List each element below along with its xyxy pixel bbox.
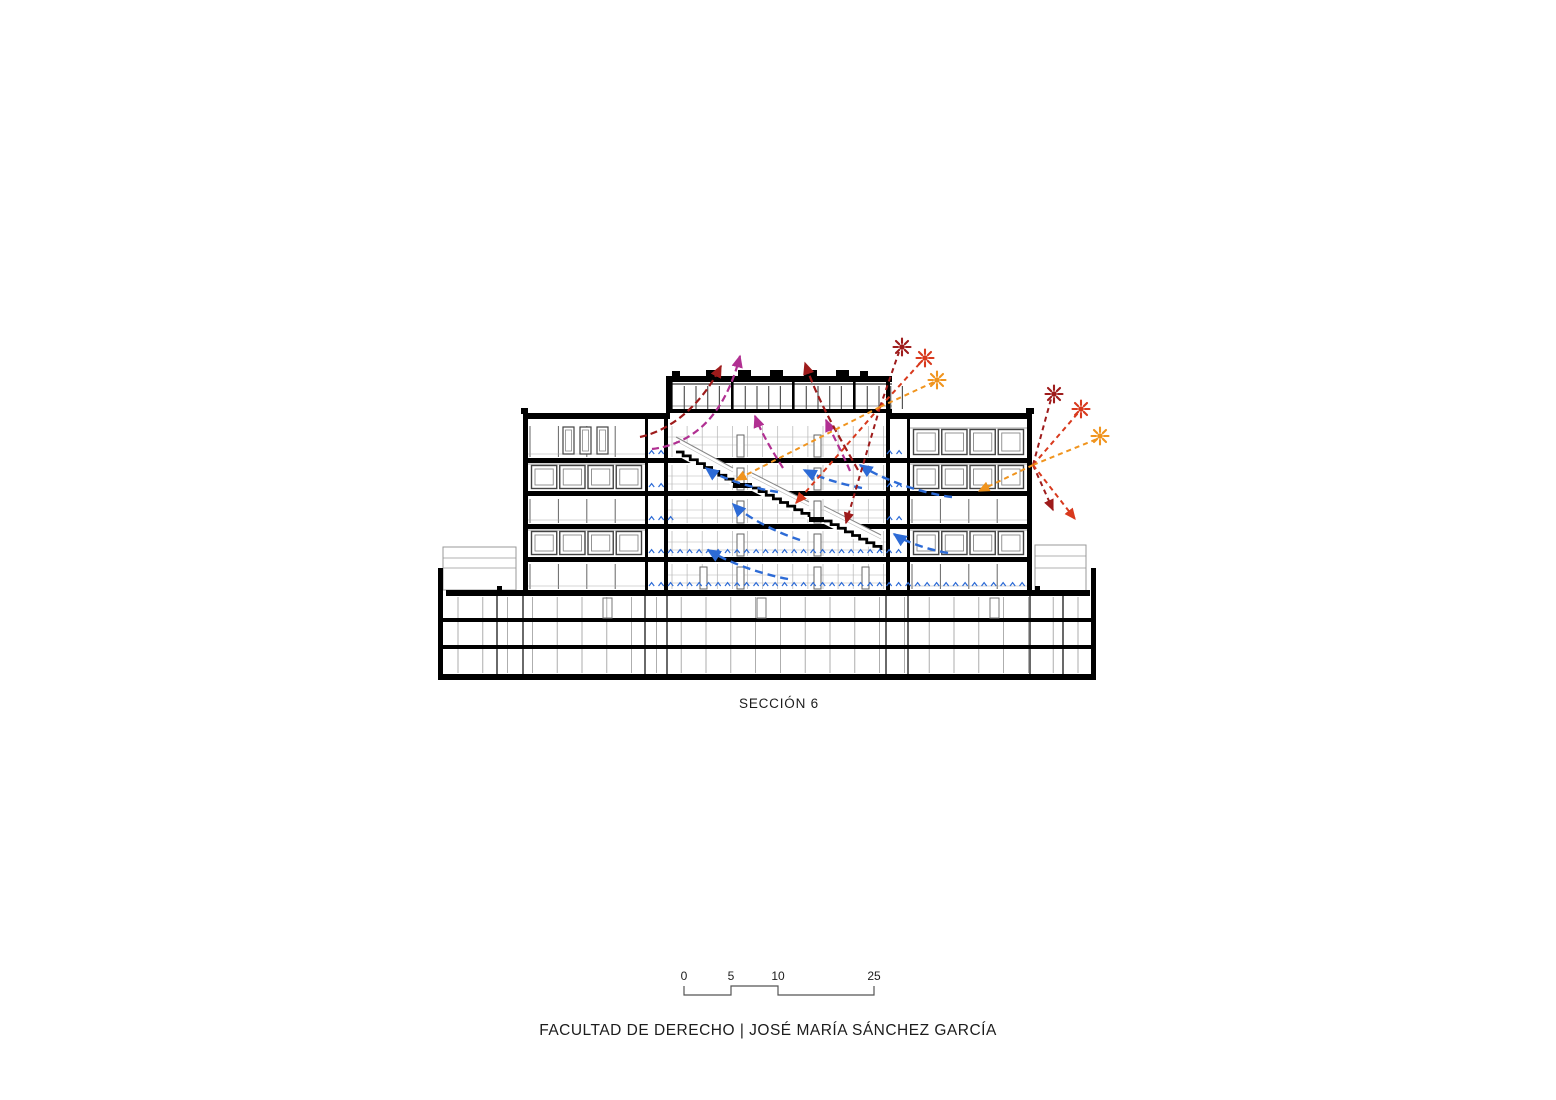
air-supply-chevron bbox=[896, 550, 901, 553]
podium-column-grid bbox=[458, 596, 1078, 674]
penthouse-left-wall bbox=[666, 376, 670, 419]
air-supply-chevron bbox=[991, 583, 996, 586]
solar-gain-arrow-2b bbox=[1033, 465, 1075, 519]
air-supply-chevron bbox=[649, 550, 654, 553]
solar-gain-arrow-1a bbox=[846, 407, 880, 523]
atrium-door bbox=[737, 501, 744, 523]
air-supply-chevron bbox=[649, 583, 654, 586]
podium-slab bbox=[443, 618, 1091, 622]
cool-air-arrow-6 bbox=[708, 550, 788, 579]
podium-slab bbox=[443, 645, 1091, 649]
left-annex bbox=[443, 547, 516, 590]
sun-ray-2b bbox=[1033, 413, 1078, 465]
air-supply-chevron bbox=[934, 583, 939, 586]
sun-icon bbox=[917, 350, 934, 367]
air-supply-chevron bbox=[659, 484, 664, 487]
air-supply-chevron bbox=[649, 451, 654, 454]
penthouse-base-slab bbox=[666, 409, 892, 413]
section-title: SECCIÓN 6 bbox=[739, 696, 819, 711]
drawing-sheet: 0 5 10 25 SECCIÓN 6 FACULTAD DE DERECHO … bbox=[0, 0, 1556, 1100]
sun-ray-2c bbox=[1033, 439, 1097, 465]
air-supply-chevron bbox=[649, 484, 654, 487]
scale-label-10: 10 bbox=[771, 969, 785, 983]
section-drawing: 0 5 10 25 SECCIÓN 6 FACULTAD DE DERECHO … bbox=[0, 0, 1556, 1100]
air-supply-chevron bbox=[1010, 583, 1015, 586]
atrium-door bbox=[737, 567, 744, 589]
sun-icon bbox=[894, 339, 911, 356]
penthouse-glazing bbox=[666, 382, 902, 412]
atrium-door bbox=[737, 435, 744, 457]
air-supply-chevron bbox=[982, 583, 987, 586]
air-supply-chevron bbox=[953, 583, 958, 586]
air-supply-chevron bbox=[659, 583, 664, 586]
podium-right-wall bbox=[1091, 568, 1096, 674]
podium-door bbox=[603, 598, 612, 618]
sun-icon bbox=[1092, 428, 1109, 445]
podium-door bbox=[990, 598, 999, 618]
penthouse-roof-slab bbox=[666, 376, 892, 382]
air-supply-chevron bbox=[963, 583, 968, 586]
right-facade-wall bbox=[1027, 413, 1032, 590]
sun-icon bbox=[1046, 386, 1063, 403]
air-supply-chevron bbox=[897, 451, 902, 454]
sun-icon bbox=[929, 372, 946, 389]
air-supply-chevron bbox=[972, 583, 977, 586]
air-supply-chevron bbox=[659, 451, 664, 454]
sun-icon bbox=[1073, 401, 1090, 418]
scale-label-25: 25 bbox=[867, 969, 881, 983]
left-facade-wall bbox=[523, 413, 528, 590]
podium-left-wall bbox=[438, 568, 443, 674]
podium-door bbox=[757, 598, 766, 618]
air-supply-chevron bbox=[896, 583, 901, 586]
podium-top-slab bbox=[446, 590, 1090, 596]
scale-bar-line bbox=[684, 986, 874, 995]
slab-step bbox=[497, 586, 502, 591]
air-supply-chevron bbox=[659, 517, 664, 520]
air-supply-chevron bbox=[649, 517, 654, 520]
air-supply-chevron bbox=[915, 583, 920, 586]
atrium-door bbox=[737, 534, 744, 556]
scale-bar: 0 5 10 25 bbox=[681, 969, 881, 995]
atrium-door bbox=[814, 468, 821, 490]
rooflight-upstands bbox=[672, 370, 868, 376]
air-supply-chevron bbox=[897, 517, 902, 520]
project-caption: FACULTAD DE DERECHO | JOSÉ MARÍA SÁNCHEZ… bbox=[539, 1022, 997, 1039]
right-annex bbox=[1035, 545, 1086, 592]
scale-label-0: 0 bbox=[681, 969, 688, 983]
penthouse bbox=[666, 370, 902, 419]
air-supply-chevron bbox=[1001, 583, 1006, 586]
air-supply-chevron bbox=[1020, 583, 1025, 586]
air-supply-chevron bbox=[925, 583, 930, 586]
podium-floor-slab bbox=[438, 674, 1096, 680]
air-supply-chevron bbox=[944, 583, 949, 586]
air-supply-chevron bbox=[659, 550, 664, 553]
sun-icons bbox=[894, 339, 1109, 445]
slab-step bbox=[1035, 586, 1040, 591]
scale-label-5: 5 bbox=[728, 969, 735, 983]
cool-air-arrow-5 bbox=[894, 534, 948, 553]
